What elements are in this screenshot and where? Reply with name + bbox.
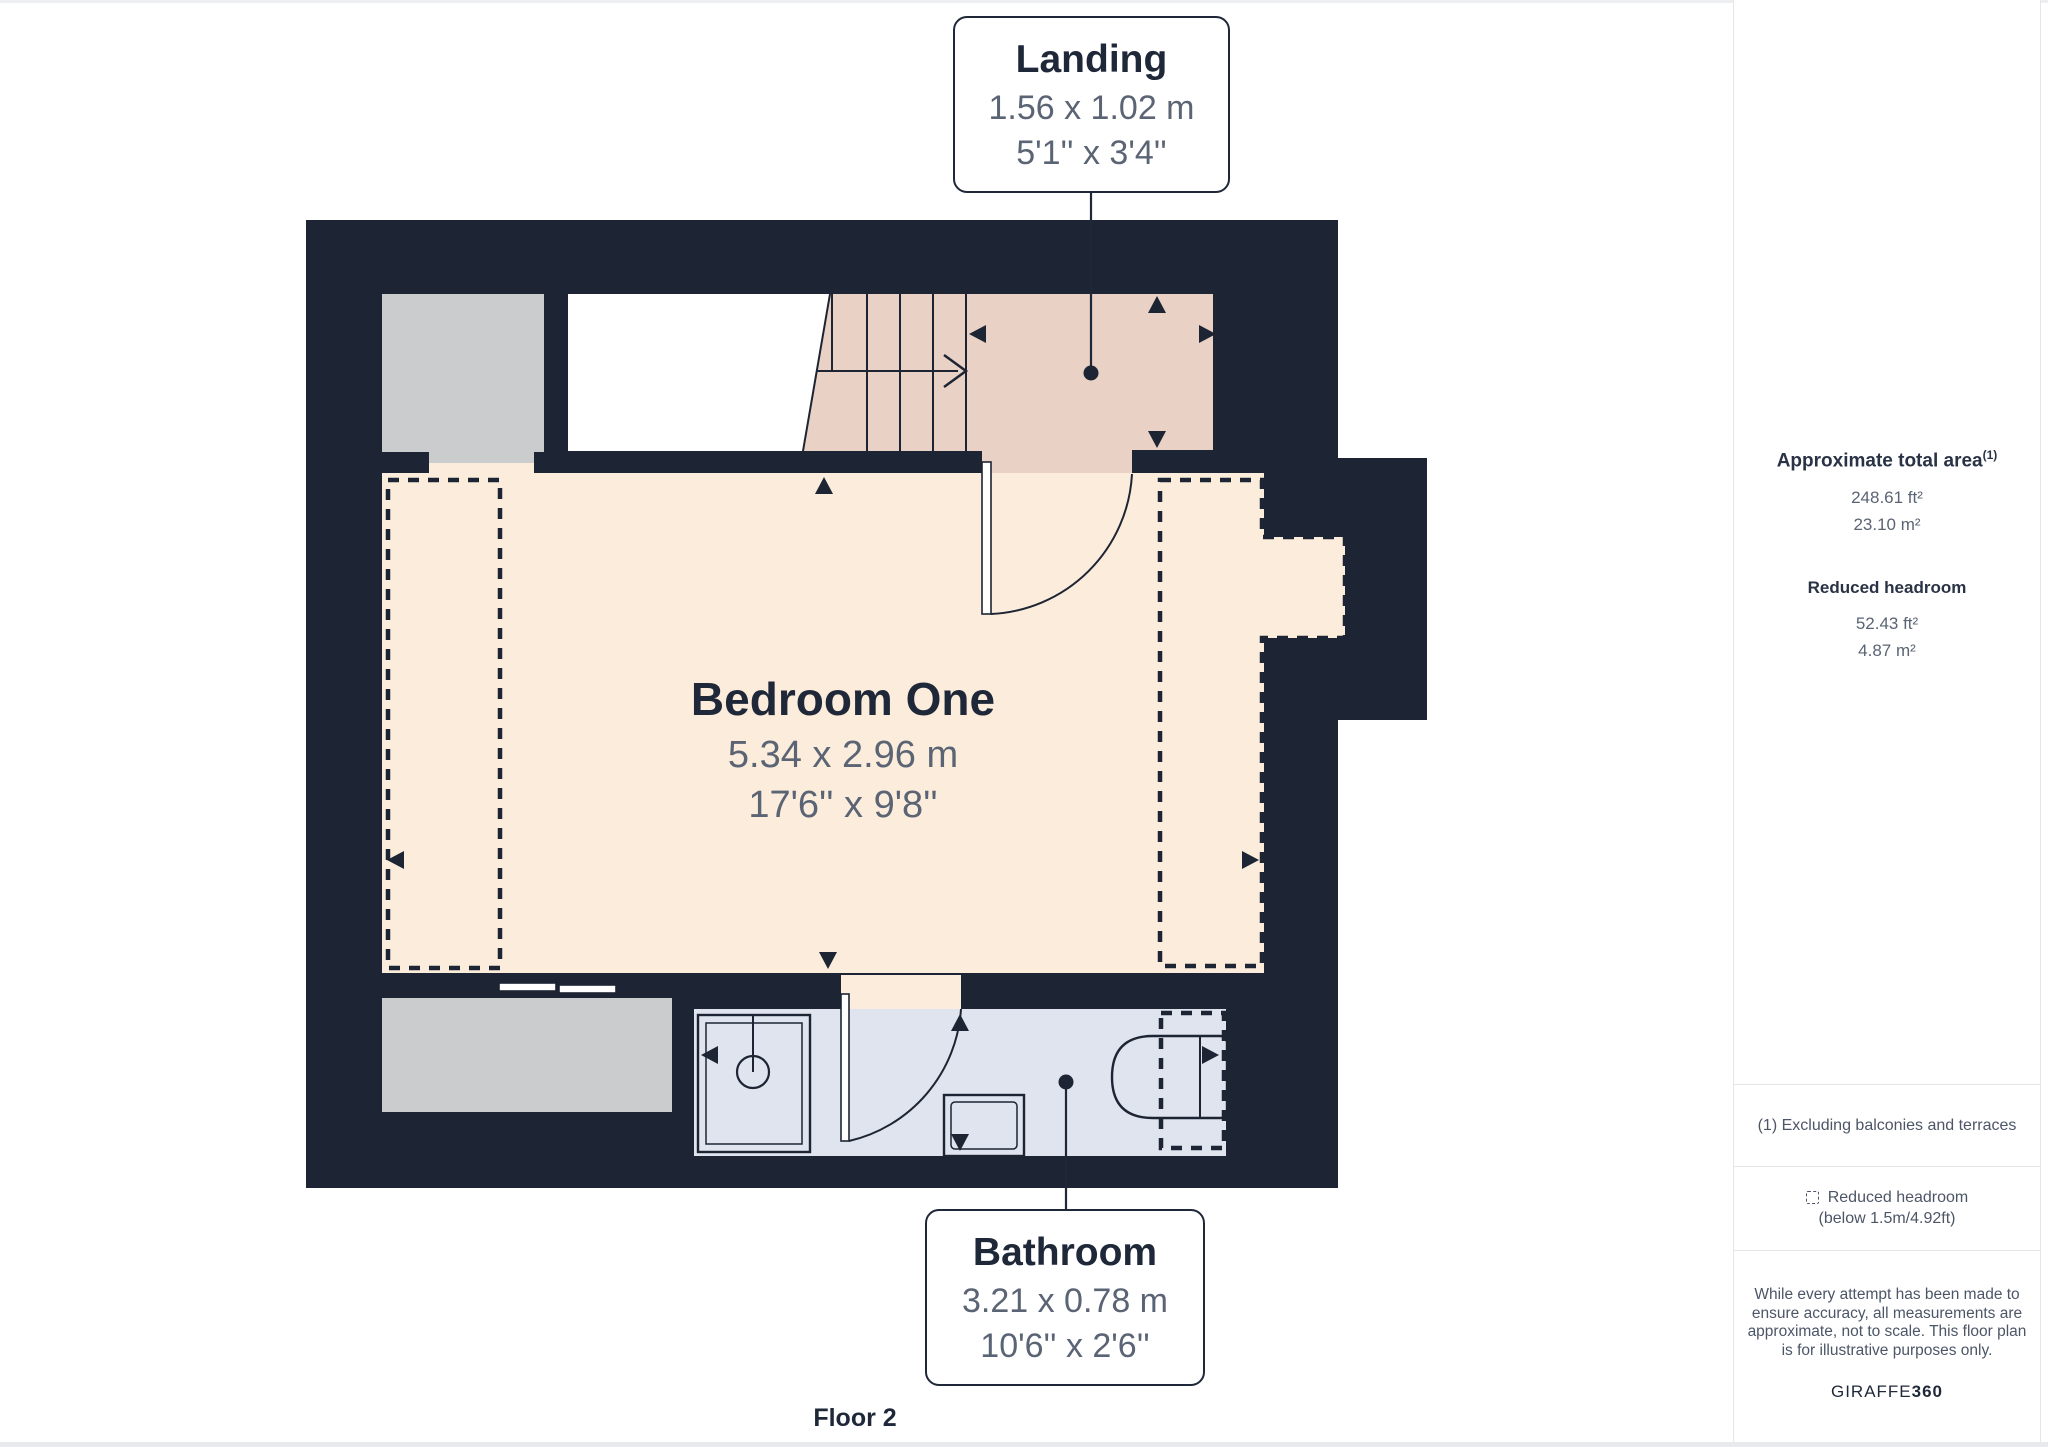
reduced-headroom-ft: 52.43 ft²	[1734, 610, 2040, 637]
legend-line2: (below 1.5m/4.92ft)	[1734, 1208, 2040, 1229]
room-dimensions-metric: 1.56 x 1.02 m	[988, 86, 1194, 131]
storage-area-top	[382, 294, 544, 452]
stairwell-void	[568, 294, 830, 451]
room-dimensions-imperial: 10'6'' x 2'6''	[980, 1324, 1149, 1369]
footnote-text: (1) Excluding balconies and terraces	[1734, 1117, 2040, 1135]
bathroom-leader-dot	[1059, 1075, 1074, 1090]
legend-section: Reduced headroom (below 1.5m/4.92ft)	[1734, 1187, 2040, 1229]
sliding-door-panel	[559, 985, 616, 993]
sidebar-divider	[1734, 1250, 2040, 1251]
stairs-floor	[803, 294, 982, 451]
floor-number-label: Floor 2	[790, 1404, 920, 1433]
reduced-headroom-heading: Reduced headroom	[1734, 578, 2040, 598]
storage-opening	[429, 452, 534, 463]
bedroom-alcove	[1264, 537, 1345, 638]
room-name: Bedroom One	[691, 668, 995, 730]
footnote-section: (1) Excluding balconies and terraces	[1734, 1117, 2040, 1135]
total-area-ft: 248.61 ft²	[1734, 484, 2040, 511]
info-sidebar: Approximate total area(1) 248.61 ft² 23.…	[1733, 0, 2041, 1442]
sidebar-divider	[1734, 1084, 2040, 1085]
reduced-headroom-section: Reduced headroom 52.43 ft² 4.87 m²	[1734, 578, 2040, 664]
bedroom-opening-strip	[429, 463, 534, 473]
legend-line1: Reduced headroom	[1828, 1187, 1969, 1208]
floorplan-page: Landing 1.56 x 1.02 m 5'1'' x 3'4'' Bedr…	[0, 0, 2048, 1447]
sliding-door-panel	[499, 983, 556, 991]
bathroom-door-leaf	[841, 994, 849, 1141]
total-area-m: 23.10 m²	[1734, 511, 2040, 538]
bathroom-floor	[694, 1009, 1226, 1156]
storage-area-bottom	[382, 998, 672, 1112]
bedroom-label: Bedroom One 5.34 x 2.96 m 17'6'' x 9'8''	[613, 668, 1073, 830]
bathroom-label-box: Bathroom 3.21 x 0.78 m 10'6'' x 2'6''	[925, 1209, 1205, 1386]
room-dimensions-metric: 3.21 x 0.78 m	[962, 1279, 1168, 1324]
room-name: Landing	[1016, 34, 1168, 86]
bedroom-door-leaf	[982, 462, 991, 614]
reduced-headroom-m: 4.87 m²	[1734, 637, 2040, 664]
brand-suffix: 360	[1912, 1382, 1943, 1401]
room-name: Bathroom	[973, 1227, 1157, 1279]
landing-door-threshold	[982, 450, 1132, 473]
disclaimer-section: While every attempt has been made to ens…	[1734, 1286, 2040, 1402]
total-area-heading: Approximate total area(1)	[1734, 448, 2040, 472]
page-bottom-border	[0, 1442, 2048, 1447]
total-area-section: Approximate total area(1) 248.61 ft² 23.…	[1734, 448, 2040, 538]
sidebar-divider	[1734, 1166, 2040, 1167]
dashed-square-icon	[1806, 1191, 1819, 1204]
room-dimensions-imperial: 17'6'' x 9'8''	[748, 780, 937, 830]
bathroom-door-threshold	[841, 975, 961, 1009]
footnote-marker: (1)	[1983, 448, 1998, 462]
room-dimensions-metric: 5.34 x 2.96 m	[728, 730, 958, 780]
brand-name: GIRAFFE	[1831, 1382, 1912, 1401]
room-dimensions-imperial: 5'1'' x 3'4''	[1016, 131, 1166, 176]
landing-leader-dot	[1084, 366, 1099, 381]
legend-row: Reduced headroom	[1734, 1187, 2040, 1208]
landing-label-box: Landing 1.56 x 1.02 m 5'1'' x 3'4''	[953, 16, 1230, 193]
giraffe360-logo: GIRAFFE360	[1734, 1382, 2040, 1402]
disclaimer-text: While every attempt has been made to ens…	[1743, 1286, 2031, 1360]
